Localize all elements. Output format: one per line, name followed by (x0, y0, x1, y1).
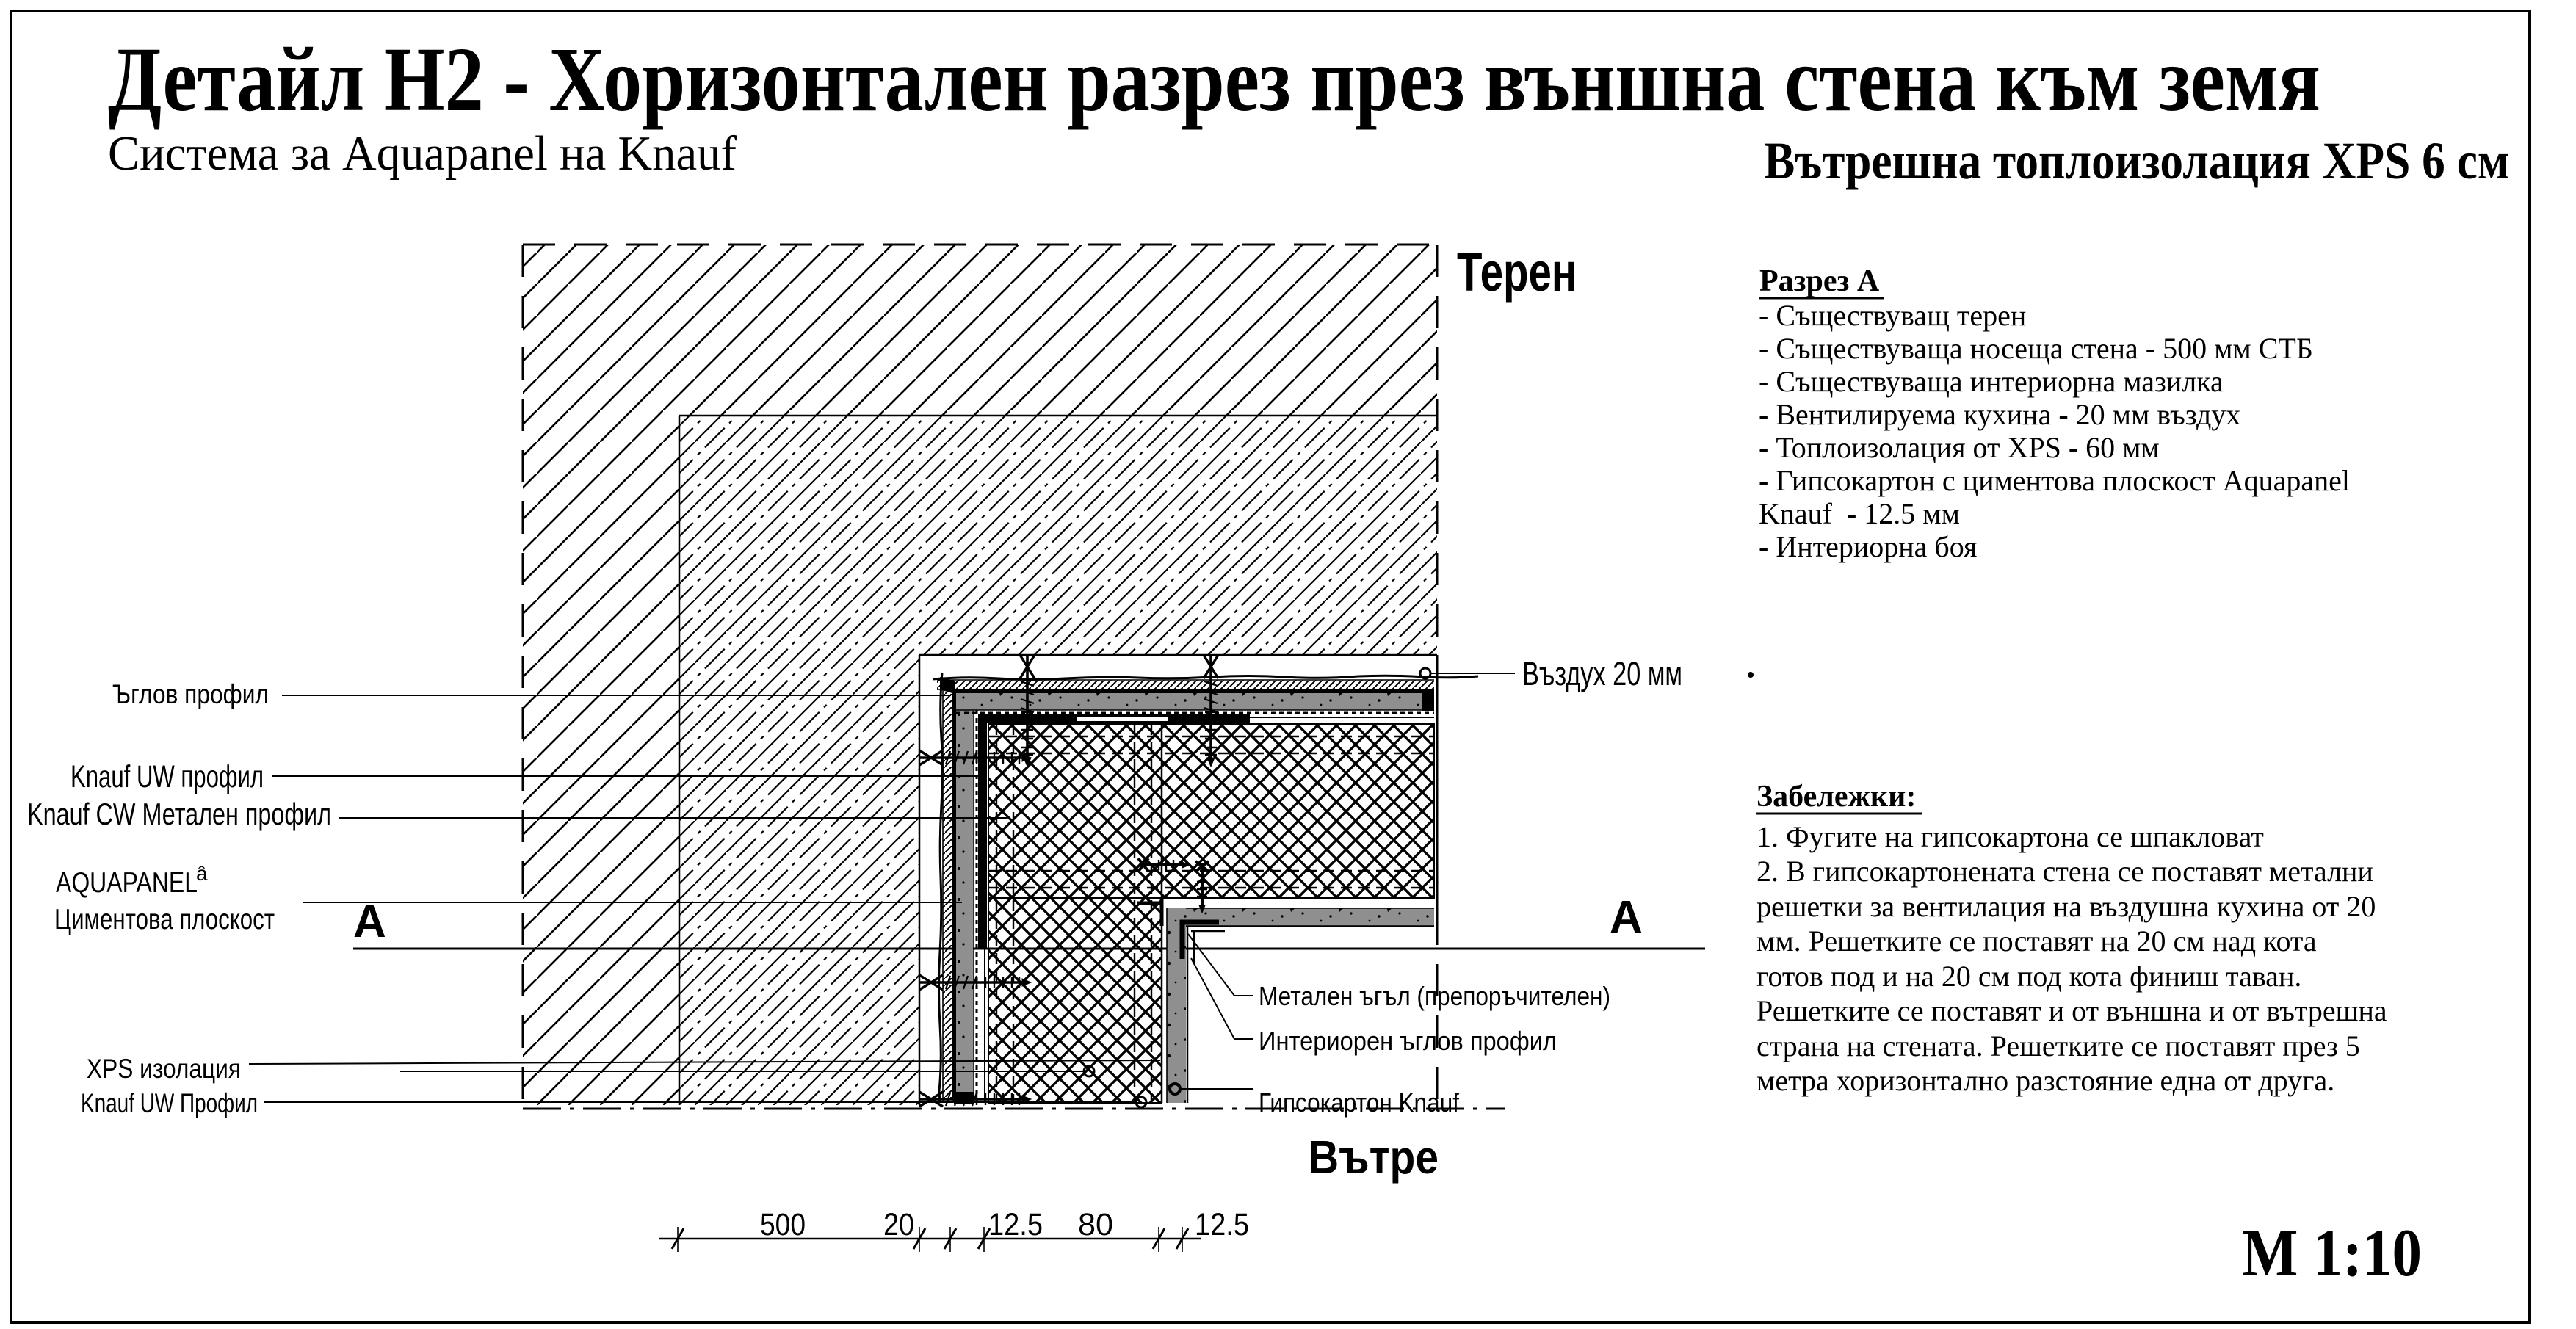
svg-text:Вътрешна топлоизолация XPS 6 с: Вътрешна топлоизолация XPS 6 см (1764, 131, 2509, 190)
svg-text:Knauf UW профил: Knauf UW профил (70, 759, 264, 794)
svg-text:метра хоризонтално разстояние: метра хоризонтално разстояние една от др… (1756, 1064, 2334, 1097)
svg-text:â: â (196, 862, 208, 885)
svg-text:20: 20 (883, 1207, 914, 1242)
svg-text:Система за Aquapanel на Knauf: Система за Aquapanel на Knauf (108, 126, 737, 181)
svg-text:2. В гипсокартонената стена се: 2. В гипсокартонената стена се поставят … (1756, 855, 2373, 888)
svg-text:А: А (1610, 892, 1643, 943)
svg-text:страна на стената. Решетките с: страна на стената. Решетките се поставят… (1756, 1029, 2360, 1062)
svg-text:А: А (353, 897, 386, 947)
svg-text:12.5: 12.5 (988, 1207, 1043, 1242)
svg-text:Гипсокартон Knauf: Гипсокартон Knauf (1259, 1087, 1460, 1118)
svg-text:Knauf - 12.5 мм: Knauf - 12.5 мм (1759, 497, 1960, 530)
svg-text:Разрез А: Разрез А (1759, 264, 1880, 298)
svg-text:Метален ъгъл (препоръчителен): Метален ъгъл (препоръчителен) (1259, 981, 1610, 1011)
svg-text:AQUAPANEL: AQUAPANEL (56, 867, 198, 899)
svg-text:- Съществуващ терен: - Съществуващ терен (1759, 299, 2026, 332)
svg-text:М 1:10: М 1:10 (2242, 1215, 2422, 1290)
svg-text:Интериорен ъглов профил: Интериорен ъглов профил (1259, 1026, 1557, 1056)
svg-text:Циментова плоскост: Циментова плоскост (54, 904, 275, 935)
svg-text:решетки за вентилация на възду: решетки за вентилация на въздушна кухина… (1756, 890, 2376, 923)
svg-text:- Съществуваща интериорна мази: - Съществуваща интериорна мазилка (1759, 365, 2224, 398)
svg-text:Забележки:: Забележки: (1756, 780, 1916, 814)
svg-text:Вътре: Вътре (1309, 1131, 1439, 1184)
svg-text:12.5: 12.5 (1195, 1207, 1249, 1242)
svg-text:Детайл H2 - Хоризонтален разре: Детайл H2 - Хоризонтален разрез през вън… (108, 29, 2320, 131)
svg-text:Терен: Терен (1457, 242, 1577, 303)
svg-text:- Топлоизолация от XPS - 60 мм: - Топлоизолация от XPS - 60 мм (1759, 431, 2160, 464)
svg-text:Knauf CW Метален профил: Knauf CW Метален профил (27, 797, 331, 831)
svg-text:- Съществуваща носеща стена -: - Съществуваща носеща стена - 500 мм СТБ (1759, 332, 2313, 365)
svg-text:готов под и на 20 см под кота: готов под и на 20 см под кота финиш тава… (1756, 960, 2301, 993)
svg-text:Решетките се поставят и от вън: Решетките се поставят и от външна и от в… (1756, 994, 2387, 1027)
svg-text:- Интериорна боя: - Интериорна боя (1759, 530, 1977, 563)
svg-text:мм. Решетките се поставят на 2: мм. Решетките се поставят на 20 см над к… (1756, 924, 2317, 957)
svg-text:- Гипсокартон с циментова плос: - Гипсокартон с циментова плоскост Aquap… (1759, 464, 2350, 497)
svg-text:Knauf UW Профил: Knauf UW Профил (81, 1088, 258, 1118)
svg-text:80: 80 (1078, 1207, 1113, 1242)
svg-text:1. Фугите на гипсокартона се ш: 1. Фугите на гипсокартона се шпакловат (1756, 820, 2264, 853)
svg-text:Въздух 20 мм: Въздух 20 мм (1522, 655, 1682, 692)
svg-text:Ъглов профил: Ъглов профил (112, 679, 269, 709)
svg-text:- Вентилируема кухина - 20 мм: - Вентилируема кухина - 20 мм въздух (1759, 398, 2240, 431)
svg-text:XPS изолация: XPS изолация (87, 1054, 241, 1084)
svg-text:500: 500 (760, 1207, 806, 1242)
